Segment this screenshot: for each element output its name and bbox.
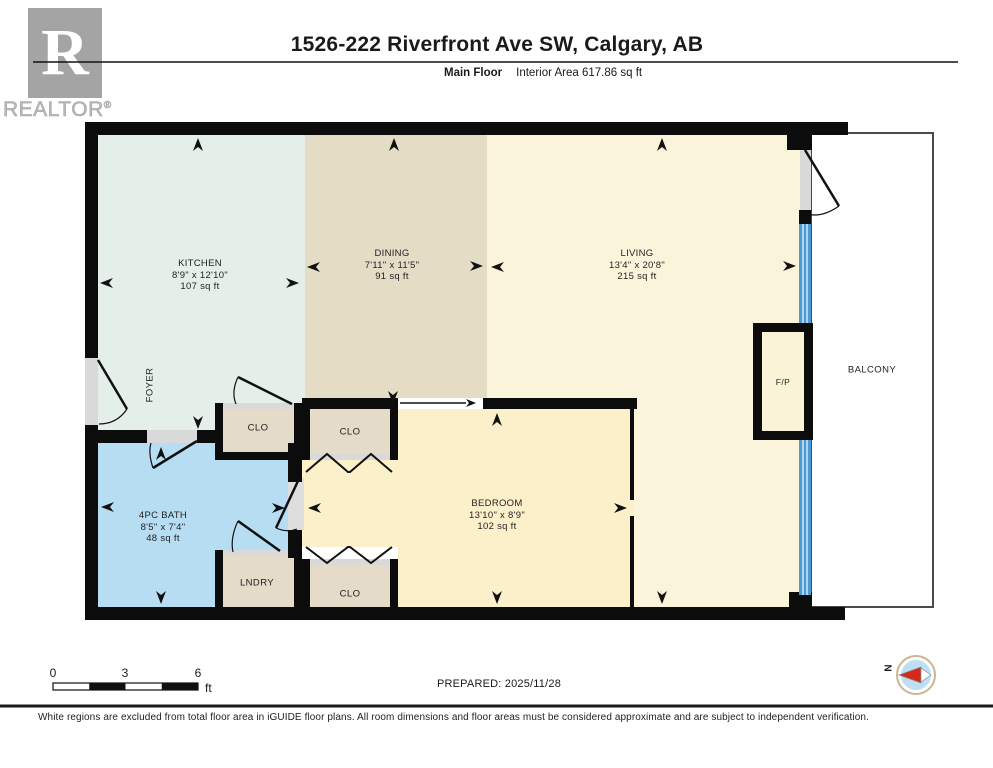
dimension-arrows xyxy=(100,138,796,604)
compass-north-label: N xyxy=(884,664,895,671)
realtor-logo-r: R xyxy=(41,20,89,86)
closet-boxes xyxy=(215,398,398,607)
compass-icon xyxy=(897,656,935,694)
scale-tick-0: 0 xyxy=(50,666,57,680)
room-label-fireplace: F/P xyxy=(776,377,790,387)
floor-subtitle: Main FloorInterior Area 617.86 sq ft xyxy=(444,67,642,79)
walls xyxy=(85,122,848,620)
prepared-date: PREPARED: 2025/11/28 xyxy=(437,678,561,690)
room-label-balcony: BALCONY xyxy=(848,365,896,376)
room-label-foyer: FOYER xyxy=(145,368,156,403)
scale-bar xyxy=(53,683,198,690)
scale-tick-6: 6 xyxy=(195,666,202,680)
room-label-dining: DINING7'11" x 11'5"91 sq ft xyxy=(365,248,420,283)
registered-mark-icon: ® xyxy=(104,100,112,111)
doors xyxy=(85,150,839,563)
room-label-closet-hall: CLO xyxy=(248,423,269,434)
interior-area-label: Interior Area 617.86 sq ft xyxy=(516,67,642,79)
scale-unit-label: ft xyxy=(205,681,212,695)
room-label-bedroom: BEDROOM13'10" x 8'9"102 sq ft xyxy=(469,498,525,533)
room-label-closet-bedroom-bottom: CLO xyxy=(340,589,361,600)
room-label-bath: 4PC BATH8'5" x 7'4"48 sq ft xyxy=(139,510,187,545)
floorplan-page: { "logo": {"letter": "R", "brand": "REAL… xyxy=(0,0,993,768)
room-label-living: LIVING13'4" x 20'8"215 sq ft xyxy=(609,248,665,283)
realtor-logo: R xyxy=(28,8,102,98)
room-label-laundry: LNDRY xyxy=(240,578,274,589)
room-label-closet-bedroom-top: CLO xyxy=(340,427,361,438)
floor-label: Main Floor xyxy=(444,67,502,79)
room-label-kitchen: KITCHEN8'9" x 12'10"107 sq ft xyxy=(172,258,228,293)
realtor-logo-brand: REALTOR® xyxy=(3,98,112,122)
balcony-window-glass xyxy=(799,224,811,595)
scale-tick-3: 3 xyxy=(122,666,129,680)
footer-disclaimer: White regions are excluded from total fl… xyxy=(38,712,869,723)
page-title: 1526-222 Riverfront Ave SW, Calgary, AB xyxy=(291,33,703,57)
room-fills xyxy=(98,135,800,607)
